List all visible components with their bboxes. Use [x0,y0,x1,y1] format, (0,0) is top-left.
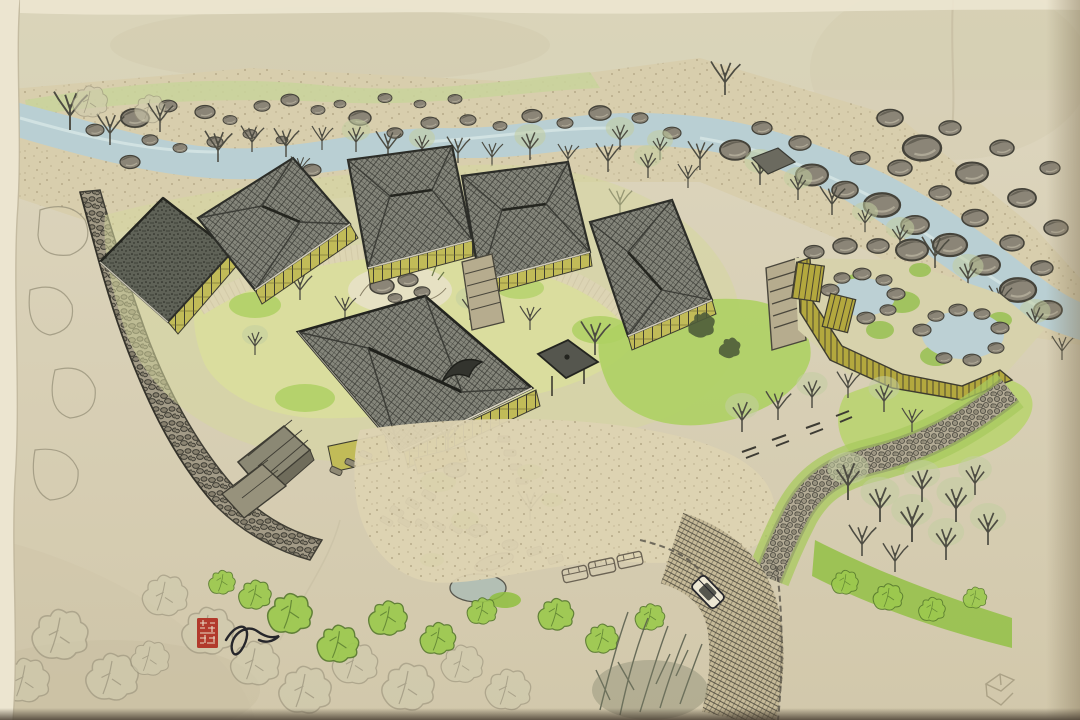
site-rendering-canvas [0,0,1080,720]
bath-screen-panel [792,262,825,302]
paper-stain [110,7,550,83]
paper-crease [952,0,953,130]
artwork-photo [0,0,1080,720]
